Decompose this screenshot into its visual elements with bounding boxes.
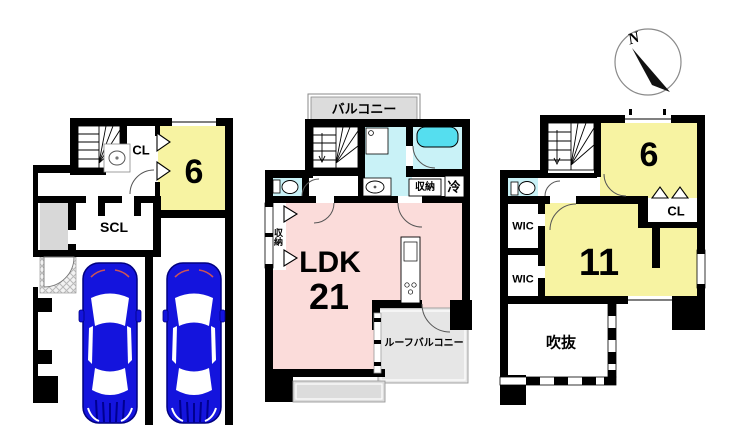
door-arc-toilet-3f xyxy=(545,181,560,196)
washing-machine xyxy=(366,128,388,154)
bathtub xyxy=(417,127,458,147)
window-1f-top xyxy=(172,118,216,126)
compass xyxy=(615,29,681,95)
floor2-plan xyxy=(265,94,472,402)
washbasin-1f xyxy=(104,144,130,172)
sink-2f xyxy=(363,178,391,196)
toilet-2f xyxy=(273,180,298,194)
floorplan-page: 6 CL SCL バルコニー 収納 冷 LDK 21 ルーフバルコニー 収納 6… xyxy=(0,0,740,443)
toilet-3f xyxy=(511,182,535,196)
wic1-label: WIC xyxy=(512,222,533,233)
stairs-3f xyxy=(548,123,594,170)
car-left xyxy=(79,263,141,423)
porch-area xyxy=(40,200,68,250)
void-label: 吹抜 xyxy=(546,336,576,351)
scl-label: SCL xyxy=(100,220,128,234)
room-6-label-1f: 6 xyxy=(185,155,204,189)
window-2f-left xyxy=(265,203,273,268)
storage-side-label-2f: 収納 xyxy=(273,228,282,246)
stairs-2f xyxy=(313,127,358,168)
roof-balcony-railing xyxy=(374,313,381,373)
roof-balcony-label: ルーフバルコニー xyxy=(384,339,463,349)
room-6-label-3f: 6 xyxy=(640,138,659,172)
room-11-label: 11 xyxy=(579,244,619,282)
window-3f-bottom xyxy=(628,296,672,304)
door-arc-hall-1f xyxy=(130,170,154,194)
ldk-label: LDK xyxy=(299,248,361,278)
ldk-size-label: 21 xyxy=(309,279,349,315)
compass-circle xyxy=(615,29,681,95)
window-3f-top xyxy=(625,109,671,123)
fridge-label: 冷 xyxy=(447,181,460,194)
cl-label-3f: CL xyxy=(667,205,684,218)
kitchen-island xyxy=(401,237,420,303)
north-arrow-icon xyxy=(632,48,670,92)
cl-label-1f: CL xyxy=(132,144,149,157)
storage-label-2f: 収納 xyxy=(415,183,435,193)
car-right xyxy=(163,263,225,423)
wic2-label: WIC xyxy=(512,275,533,286)
window-3f-right xyxy=(697,250,705,288)
balcony-label: バルコニー xyxy=(332,103,397,116)
